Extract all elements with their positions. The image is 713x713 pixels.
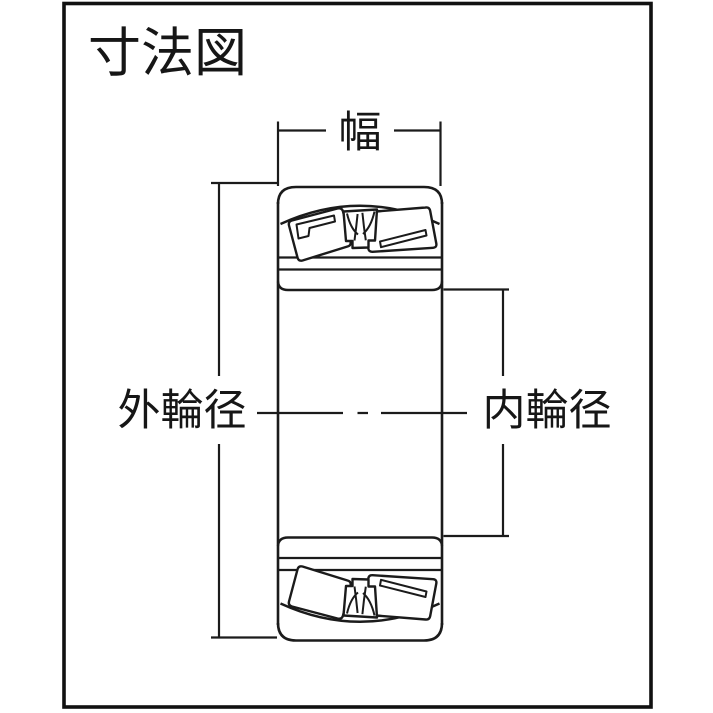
outer-ring-top-edge: [278, 187, 442, 204]
inner-diameter-label: 内輪径: [483, 387, 612, 435]
bearing-dimension-diagram: 寸法図 幅 外輪径 内輪径: [0, 0, 713, 713]
width-label: 幅: [339, 109, 382, 157]
diagram-title: 寸法図: [88, 24, 247, 83]
rollers-and-cage-top: [289, 207, 437, 260]
rollers-and-cage-bottom: [289, 566, 437, 619]
width-dimension: 幅: [278, 109, 441, 186]
inner-diameter-dimension: 内輪径: [444, 290, 612, 537]
outer-diameter-dimension: 外輪径: [118, 183, 278, 638]
inner-ring-bore-edge-bottom: [278, 538, 442, 547]
dimension-diagram-page: 寸法図 幅 外輪径 内輪径: [0, 0, 713, 713]
outer-diameter-label: 外輪径: [118, 387, 247, 435]
outer-ring-bottom-edge: [278, 623, 442, 641]
inner-ring-bore-edge-top: [278, 282, 442, 291]
